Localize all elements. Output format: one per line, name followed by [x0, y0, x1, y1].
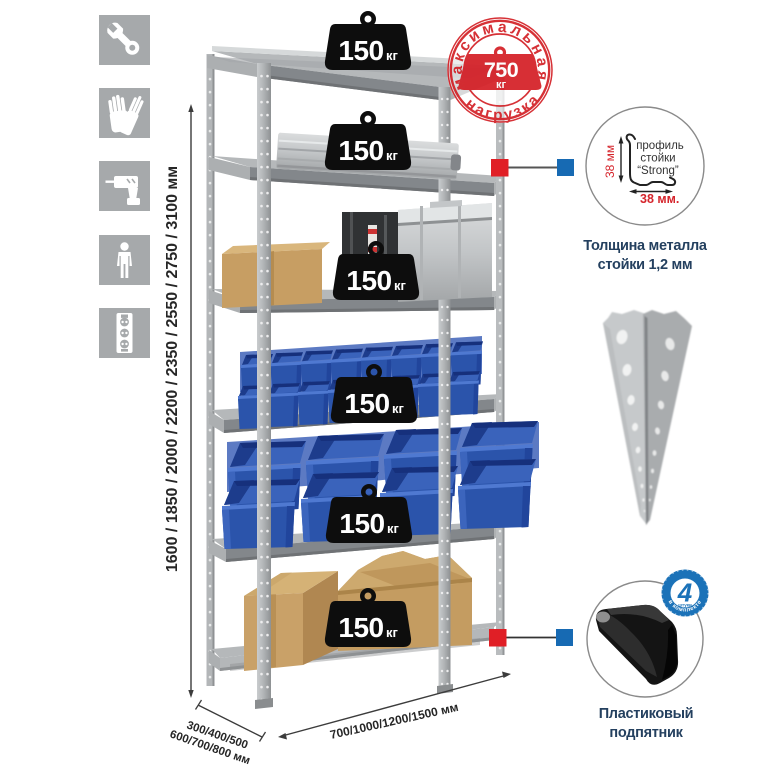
svg-text:Толщина металла: Толщина металла [583, 238, 708, 254]
svg-text:кг: кг [496, 79, 507, 91]
svg-text:38 мм: 38 мм [603, 145, 617, 178]
svg-text:Пластиковый: Пластиковый [599, 706, 694, 722]
svg-text:1600 / 1850 / 2000 / 2200 / 23: 1600 / 1850 / 2000 / 2200 / 2350 / 2550 … [164, 166, 181, 572]
svg-text:профиль: профиль [636, 140, 684, 152]
svg-text:стойки: стойки [640, 153, 675, 165]
svg-text:“Strong”: “Strong” [637, 165, 679, 177]
svg-text:стойки 1,2 мм: стойки 1,2 мм [598, 257, 693, 273]
svg-text:подпятник: подпятник [609, 725, 683, 741]
svg-text:38 мм.: 38 мм. [640, 192, 679, 206]
